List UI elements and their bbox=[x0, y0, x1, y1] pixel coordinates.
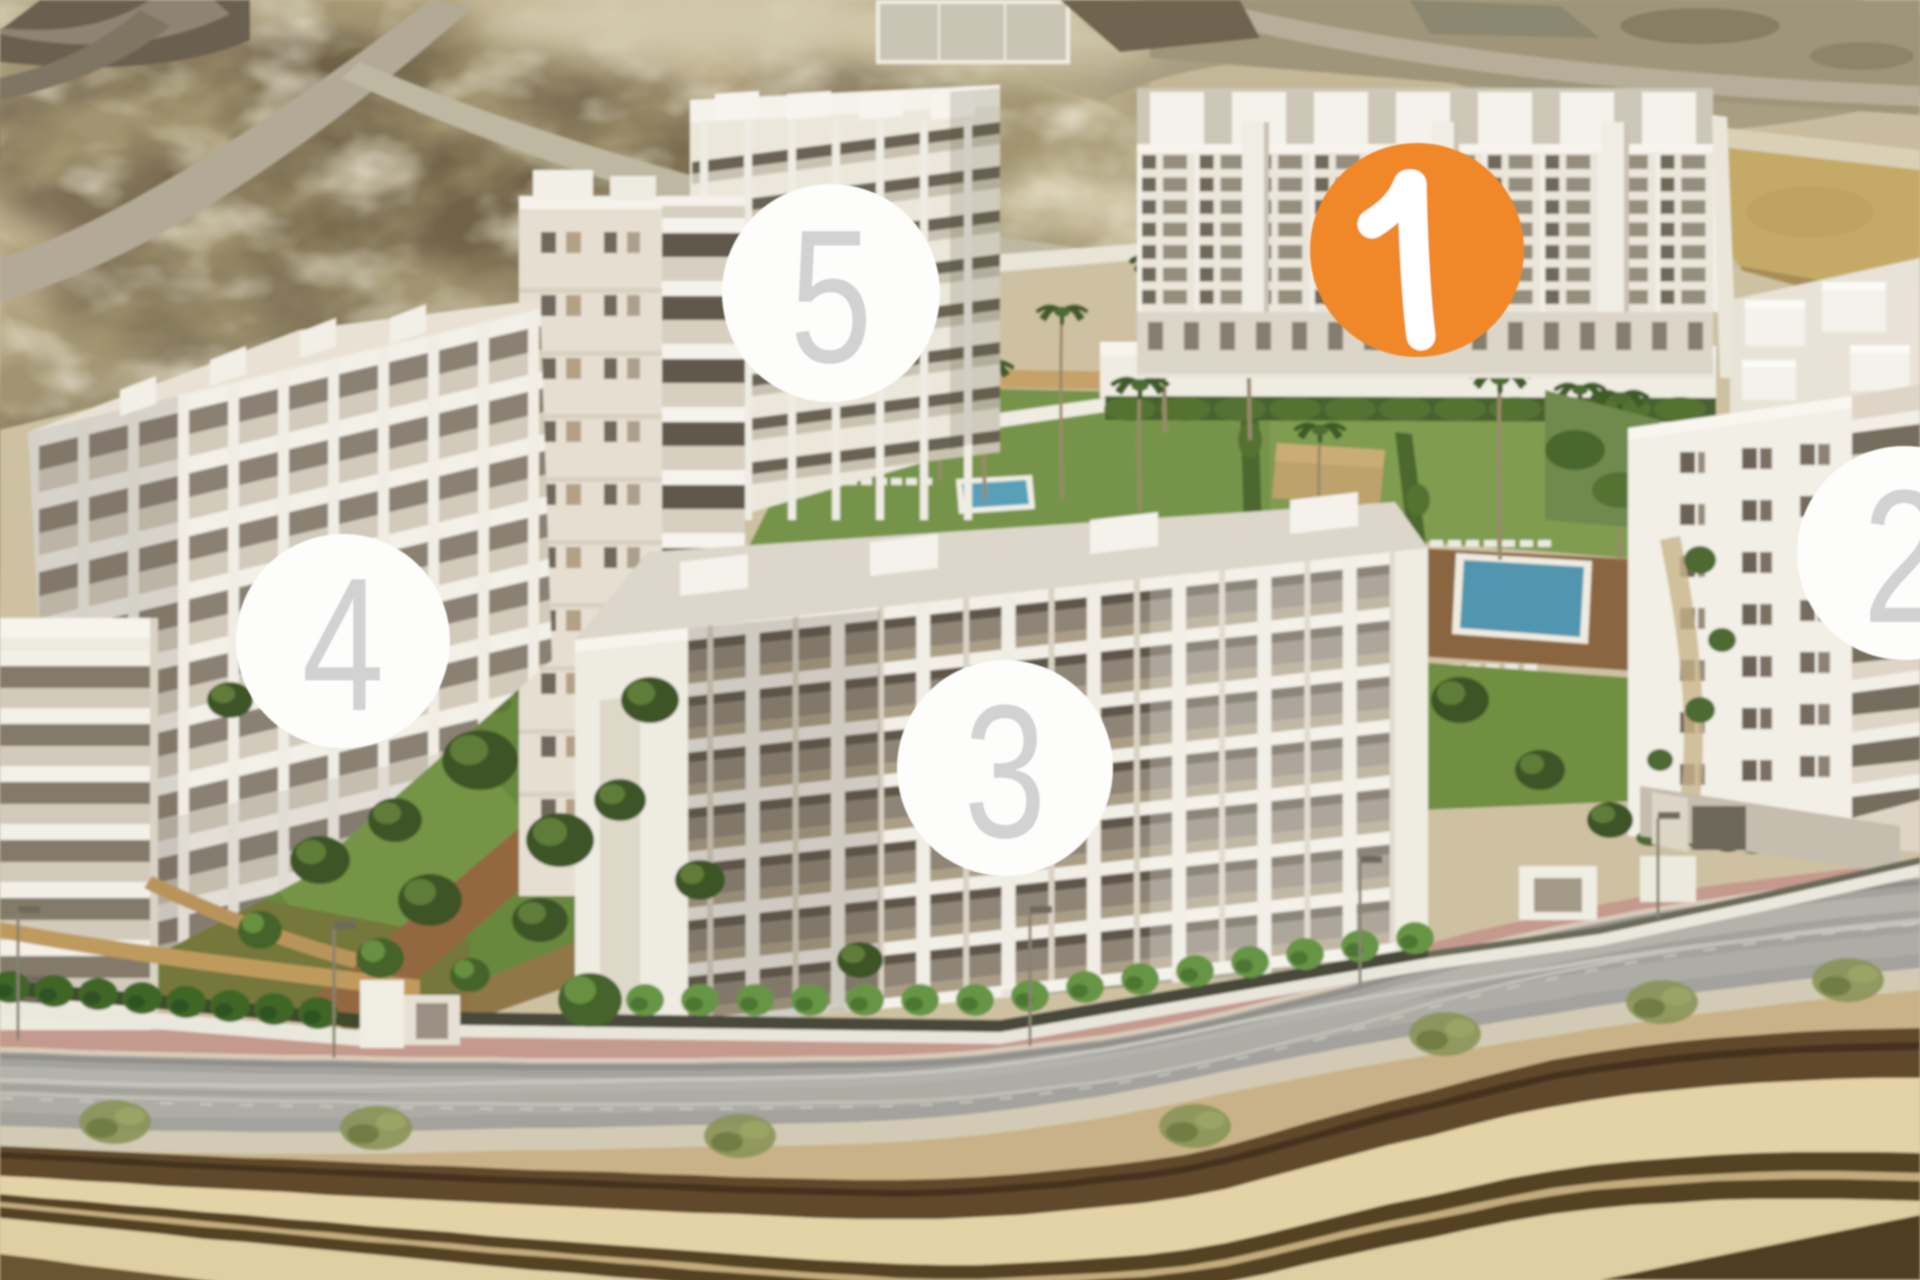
svg-text:5: 5 bbox=[790, 191, 872, 403]
svg-text:3: 3 bbox=[964, 666, 1046, 878]
svg-text:4: 4 bbox=[302, 539, 384, 751]
svg-text:2: 2 bbox=[1863, 451, 1920, 663]
